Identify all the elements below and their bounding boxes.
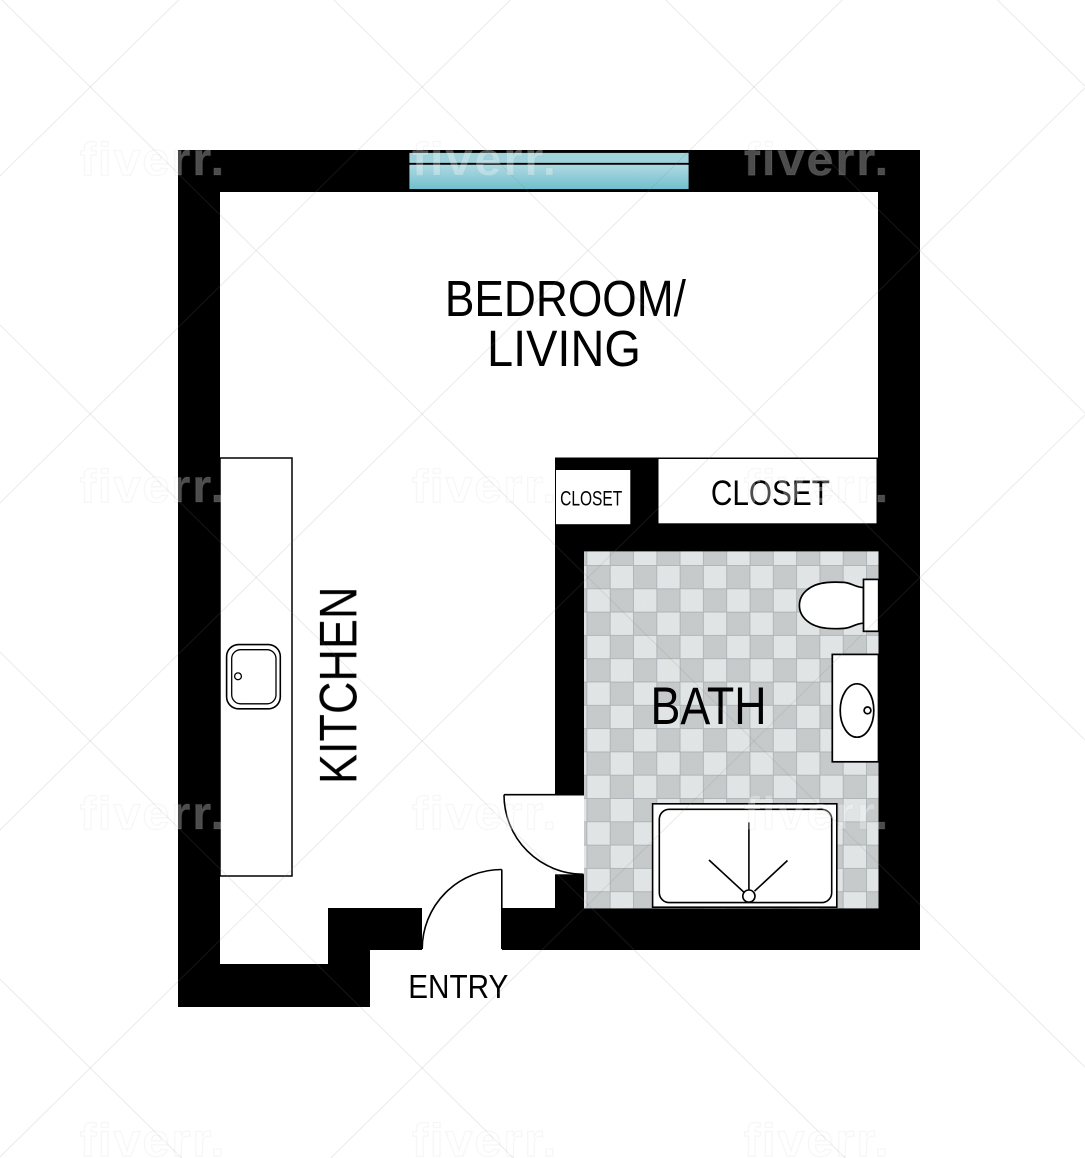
svg-text:ENTRY: ENTRY	[408, 969, 508, 1006]
svg-text:BEDROOM/: BEDROOM/	[445, 271, 687, 328]
svg-text:CLOSET: CLOSET	[560, 486, 622, 510]
svg-text:fiverr.: fiverr.	[412, 133, 558, 185]
svg-text:fiverr.: fiverr.	[80, 133, 226, 185]
svg-text:fiverr.: fiverr.	[412, 787, 558, 839]
svg-text:fiverr.: fiverr.	[744, 1114, 890, 1158]
svg-text:fiverr.: fiverr.	[412, 1114, 558, 1158]
svg-text:fiverr.: fiverr.	[744, 460, 890, 512]
svg-text:fiverr.: fiverr.	[744, 133, 890, 185]
svg-text:fiverr.: fiverr.	[744, 787, 890, 839]
svg-text:BATH: BATH	[650, 678, 766, 736]
svg-text:LIVING: LIVING	[487, 321, 641, 377]
svg-text:fiverr.: fiverr.	[80, 460, 226, 512]
svg-text:fiverr.: fiverr.	[412, 460, 558, 512]
svg-text:fiverr.: fiverr.	[80, 787, 226, 839]
svg-text:KITCHEN: KITCHEN	[310, 587, 368, 784]
svg-text:fiverr.: fiverr.	[80, 1114, 226, 1158]
